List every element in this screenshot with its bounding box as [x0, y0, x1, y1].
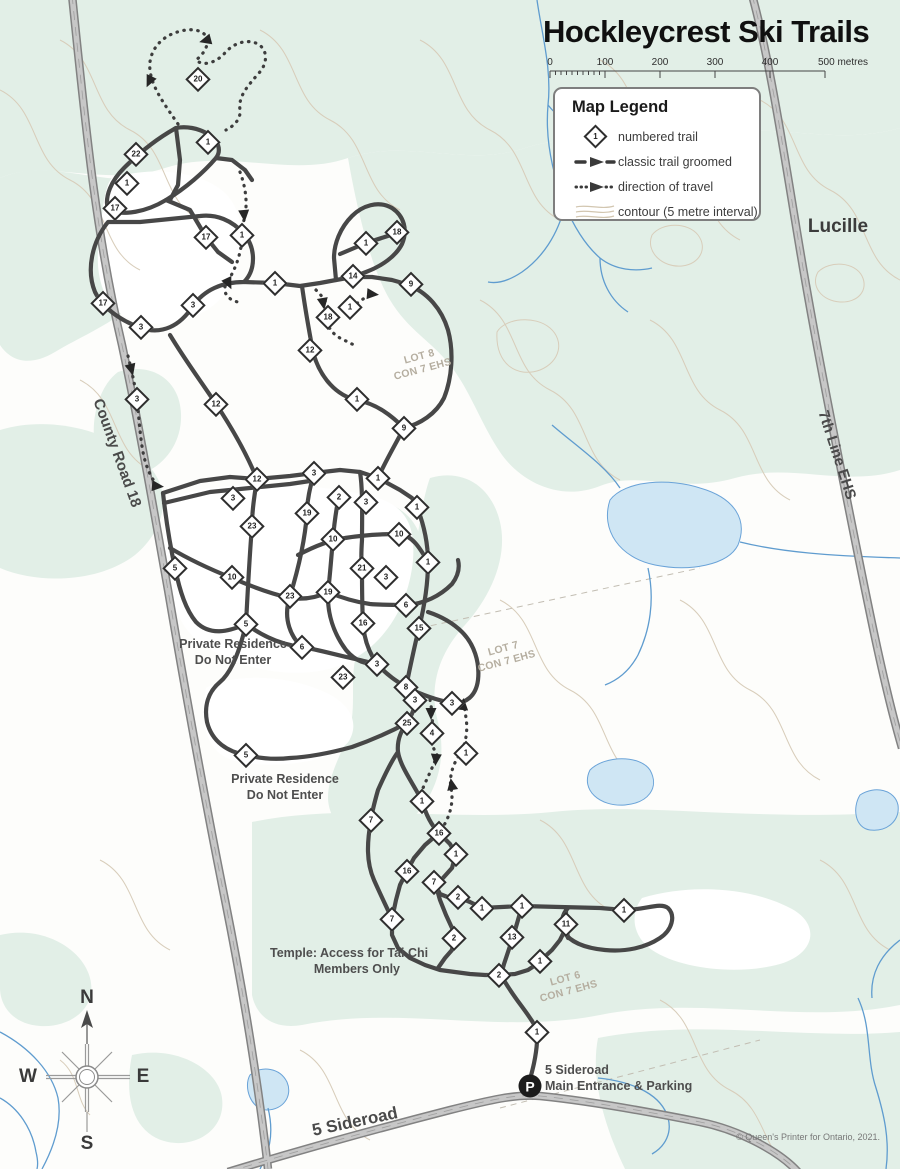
scale-tick-label: 0 — [547, 57, 553, 68]
private-residence-note-1: Private ResidenceDo Not Enter — [179, 636, 287, 668]
legend-label: classic trail groomed — [618, 155, 732, 169]
legend-row-classic-trail: classic trail groomed — [572, 149, 759, 174]
legend-label: direction of travel — [618, 180, 713, 194]
compass-west-label: W — [19, 1066, 37, 1088]
map-title: Hockleycrest Ski Trails — [543, 14, 869, 50]
lake — [587, 759, 653, 805]
map-canvas — [0, 0, 900, 1169]
scale-bar: 0 100 200 300 400 500 metres — [546, 57, 898, 81]
scale-bar-ticks — [546, 70, 846, 80]
numbered-trail-icon: 1 — [572, 128, 618, 145]
legend-row-direction: direction of travel — [572, 174, 759, 199]
legend-label: contour (5 metre interval) — [618, 205, 758, 219]
contour-icon — [572, 203, 618, 221]
temple-note: Temple: Access for Tai ChiMembers Only — [270, 945, 400, 977]
legend-row-numbered-trail: 1 numbered trail — [572, 124, 759, 149]
compass-south-label: S — [81, 1133, 94, 1155]
ski-trail-map: 2022111717117331181149181123121912313231… — [0, 0, 900, 1169]
scale-tick-label: 300 — [707, 57, 724, 68]
pond — [856, 790, 899, 830]
private-residence-note-2: Private ResidenceDo Not Enter — [231, 771, 339, 803]
compass-east-label: E — [137, 1066, 150, 1088]
place-label-lucille: Lucille — [808, 216, 868, 238]
direction-of-travel-icon — [572, 181, 618, 193]
classic-trail-icon — [572, 156, 618, 168]
legend-title: Map Legend — [572, 98, 759, 117]
lake — [607, 482, 741, 568]
scale-end-label: 500 metres — [818, 57, 868, 68]
legend-label: numbered trail — [618, 130, 698, 144]
compass-north-label: N — [80, 987, 94, 1009]
copyright-notice: © Queen's Printer for Ontario, 2021. — [736, 1132, 880, 1142]
scale-tick-label: 400 — [762, 57, 779, 68]
parking-icon: P — [519, 1075, 542, 1098]
scale-tick-label: 200 — [652, 57, 669, 68]
scale-tick-label: 100 — [597, 57, 614, 68]
entrance-label: 5 SideroadMain Entrance & Parking — [545, 1062, 692, 1094]
legend-row-contour: contour (5 metre interval) — [572, 199, 759, 224]
map-legend: Map Legend 1 numbered trail classic trai… — [553, 87, 761, 221]
